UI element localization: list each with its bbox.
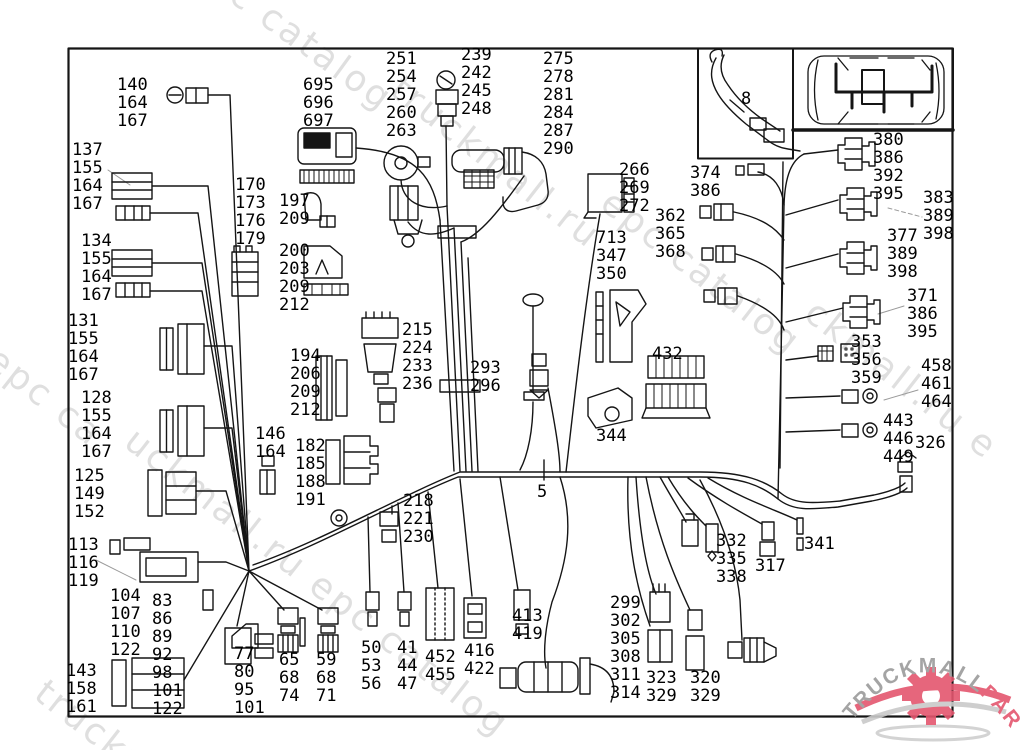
main-harness	[249, 460, 907, 571]
component-glyphs-center-right	[584, 164, 764, 428]
truckmall-logo: TRUCKMALLPARTS	[838, 612, 1022, 748]
harness-wires-left	[150, 95, 322, 680]
car-top-view	[808, 56, 944, 124]
harness-wires-right	[734, 150, 843, 499]
harness-wires-bottom-right	[628, 477, 797, 640]
bracket-part	[710, 49, 800, 151]
component-glyphs-top	[232, 71, 548, 296]
component-glyphs-left	[110, 87, 273, 708]
harness-wires-bottom-middle	[368, 477, 568, 668]
wiring-diagram-page: c catalogtruckmall.ruepc catalogl epc ca…	[0, 0, 1024, 750]
component-glyphs-right	[818, 138, 916, 492]
